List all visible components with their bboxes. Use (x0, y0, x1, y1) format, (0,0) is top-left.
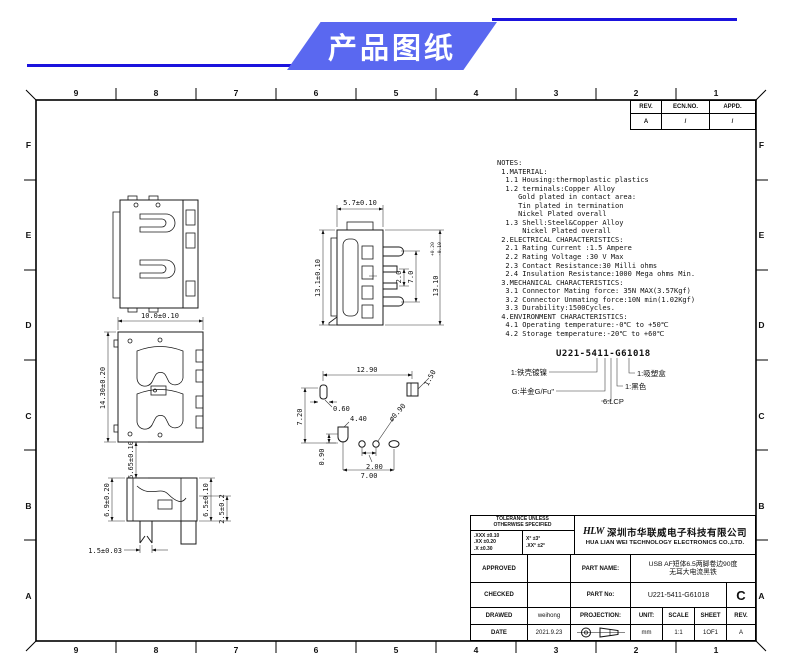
view-front (329, 222, 404, 325)
ecn-table: REV. ECN.NO. APPD. A / / (630, 100, 756, 130)
dim-front-height-right: 13.10 (432, 275, 440, 296)
dim-fp-hole: ø0.90 (387, 402, 407, 423)
drawing-sheet: 产品图纸 987654321 987654321 FEDCBA FEDCBA (0, 0, 790, 663)
dim-leg-width: 1.5±0.03 (88, 547, 122, 555)
dim-fp-slot-width: 0.60 (333, 405, 350, 413)
dim-front-height-right-plus: +0.20 (430, 242, 436, 256)
view-side-small (127, 478, 197, 544)
dim-front-width: 5.7±0.10 (343, 199, 377, 207)
dim-fp-mid: 4.40 (350, 415, 367, 423)
dim-top-height: 14.30±0.20 (99, 367, 107, 409)
part-number-code: U221-5411-G61018 (556, 349, 651, 359)
ecn-no-header: ECN.NO. (661, 100, 710, 114)
dim-fp-span: 12.90 (356, 366, 377, 374)
part-number-breakdown: U221-5411-G61018 1:铁壳镀镍 G:半金G/Fu" 6:LCP … (511, 349, 667, 406)
callout-shell: 1:铁壳镀镍 (511, 367, 548, 377)
dim-top-width: 10.0±0.10 (141, 312, 179, 320)
ecn-rev-header: REV. (630, 100, 662, 114)
ecn-appd-value: / (709, 113, 756, 130)
ecn-rev-value: A (630, 113, 662, 130)
callout-plating: G:半金G/Fu" (512, 386, 555, 396)
callout-packing: 1:吸塑盒 (637, 368, 666, 378)
dim-pin-span: 7.0 (407, 271, 415, 284)
view-top (114, 332, 203, 442)
dim-fp-vertical: 7.20 (296, 409, 304, 426)
dim-fp-row: 7.00 (361, 472, 378, 480)
callout-material: 6:LCP (603, 397, 624, 406)
dim-fp-h2: 0.90 (318, 449, 326, 466)
dimension-lines: 5.7±0.10 13.1±0.10 2.0 7.0 13.10 +0.20 -… (88, 199, 444, 555)
callout-color: 1:黑色 (625, 381, 647, 391)
dim-side-h3: 2.5±0.2 (218, 494, 226, 524)
title-block-border (470, 515, 756, 641)
dim-side-h1: 6.9±0.20 (103, 483, 111, 517)
dim-gap: 6.65±0.10 (127, 441, 135, 479)
dim-pin-pitch: 2.0 (395, 271, 403, 284)
dim-side-h2: 6.5±0.10 (202, 483, 210, 517)
dim-fp-slot: 1.50 (423, 369, 438, 388)
ecn-appd-header: APPD. (709, 100, 756, 114)
view-pcb-footprint (320, 383, 418, 447)
view-side-elevation (113, 196, 198, 312)
dim-front-height-right-minus: -0.10 (437, 242, 443, 256)
ecn-no-value: / (661, 113, 710, 130)
notes-block: NOTES: 1.MATERIAL: 1.1 Housing:thermopla… (497, 159, 695, 338)
title-block: TOLERANCE UNLESS OTHERWISE SPECIFIED .XX… (470, 515, 756, 641)
dim-front-height: 13.1±0.10 (314, 259, 322, 297)
